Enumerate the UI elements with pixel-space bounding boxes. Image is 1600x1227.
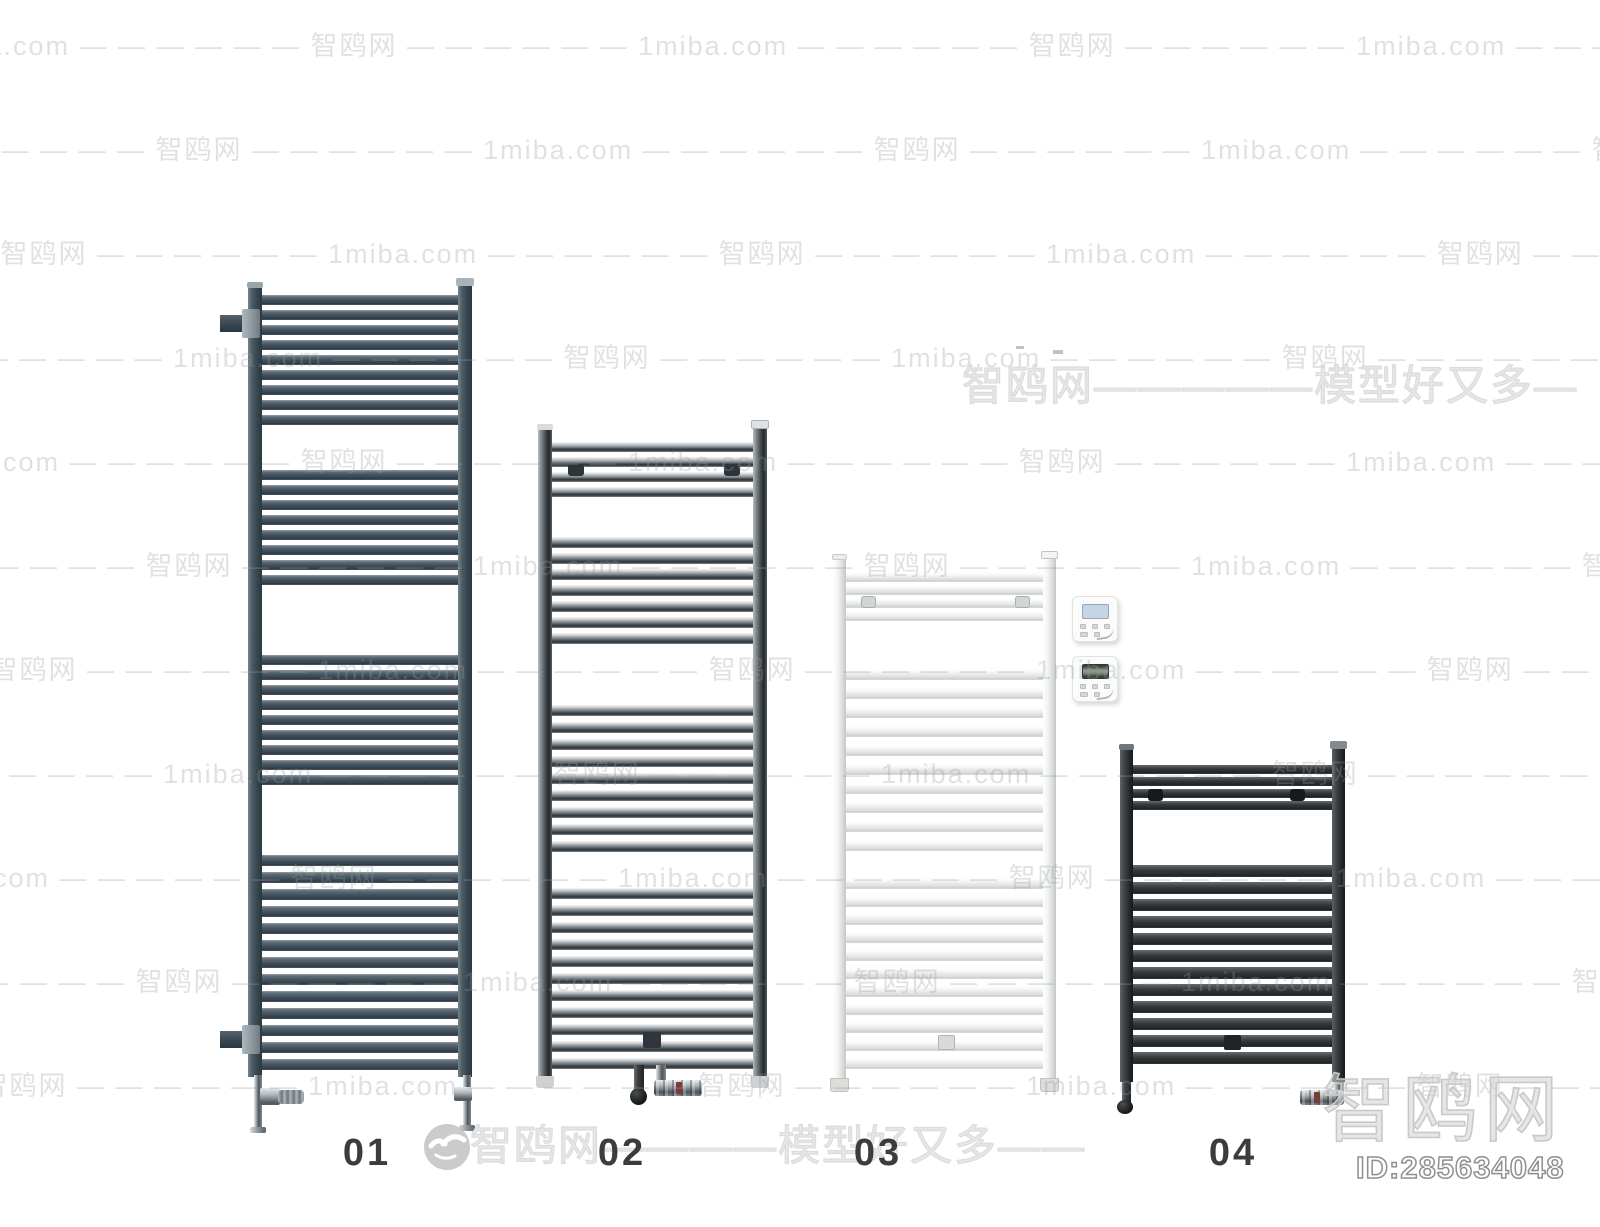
- product-showcase: 1miba.com — — — — — — 智鸥网 — — — — — — 1m…: [0, 0, 1600, 1227]
- thermostat-button: [1080, 624, 1086, 629]
- rail-top-cap: [1119, 744, 1134, 750]
- thermostat-lcd-screen: [1082, 604, 1109, 619]
- radiator-03-white: [813, 546, 1068, 1106]
- rail-top-cap: [1330, 741, 1347, 749]
- thermostat-button: [1080, 632, 1088, 637]
- thermostat-button: [1092, 624, 1098, 629]
- center-fitting: [938, 1035, 955, 1050]
- watermark-tile-row: 1miba.com — — — — — — 智鸥网 — — — — — — 1m…: [0, 648, 1600, 687]
- wall-bracket-top-clamp: [242, 309, 260, 338]
- thermostat-accent-curve: [1095, 628, 1114, 640]
- watermark-tile-row: 1miba.com — — — — — — 智鸥网 — — — — — — 1m…: [0, 856, 1600, 895]
- center-fitting: [643, 1032, 661, 1048]
- rail-top-cap: [247, 282, 263, 288]
- rail-top-cap: [537, 424, 553, 430]
- radiator-01-anthracite: [220, 278, 485, 1178]
- site-watermark-mid: 智鸥网—————模型好又多—: [962, 352, 1578, 413]
- product-label-02: 02: [577, 1132, 667, 1175]
- product-label-03: 03: [833, 1132, 923, 1175]
- center-fitting: [1224, 1035, 1241, 1050]
- thermostat-button: [1080, 692, 1088, 697]
- left-rail: [1120, 748, 1133, 1082]
- rail-top-cap: [751, 420, 769, 429]
- watermark-tile-row: 1miba.com — — — — — — 智鸥网 — — — — — — 1m…: [0, 24, 1600, 63]
- right-rail: [1332, 748, 1345, 1082]
- mount-knob-left: [861, 596, 876, 608]
- watermark-tile-row: 1miba.com — — — — — — 智鸥网 — — — — — — 1m…: [0, 960, 1600, 999]
- site-watermark-corner: 智鸥网: [1322, 1050, 1565, 1157]
- watermark-tile-row: 1miba.com — — — — — — 智鸥网 — — — — — — 1m…: [0, 128, 1600, 167]
- rail-top-cap: [456, 278, 474, 286]
- left-rail: [833, 558, 846, 1082]
- product-label-04: 04: [1188, 1132, 1278, 1175]
- site-watermark-bottom: 智鸥网————模型好又多——: [470, 1112, 1086, 1173]
- wall-bracket-bottom-clamp: [242, 1025, 260, 1054]
- pipe-flange-left: [250, 1127, 266, 1133]
- right-rail: [1043, 558, 1056, 1082]
- thermostat-controller-1: [1072, 596, 1118, 642]
- watermark-tile-row: 1miba.com — — — — — — 智鸥网 — — — — — — 1m…: [0, 544, 1600, 583]
- seagull-logo-icon: [424, 1124, 470, 1170]
- watermark-tile-row: 1miba.com — — — — — — 智鸥网 — — — — — — 1m…: [0, 232, 1600, 271]
- mount-knob-right: [1015, 596, 1030, 608]
- product-label-01: 01: [322, 1132, 412, 1175]
- watermark-tile-row: 1miba.com — — — — — — 智鸥网 — — — — — — 1m…: [0, 440, 1600, 479]
- thermostat-accent-curve: [1095, 688, 1114, 700]
- model-id-text: ID:285634048: [1356, 1150, 1565, 1186]
- watermark-tile-row: 1miba.com — — — — — — 智鸥网 — — — — — — 1m…: [0, 752, 1600, 791]
